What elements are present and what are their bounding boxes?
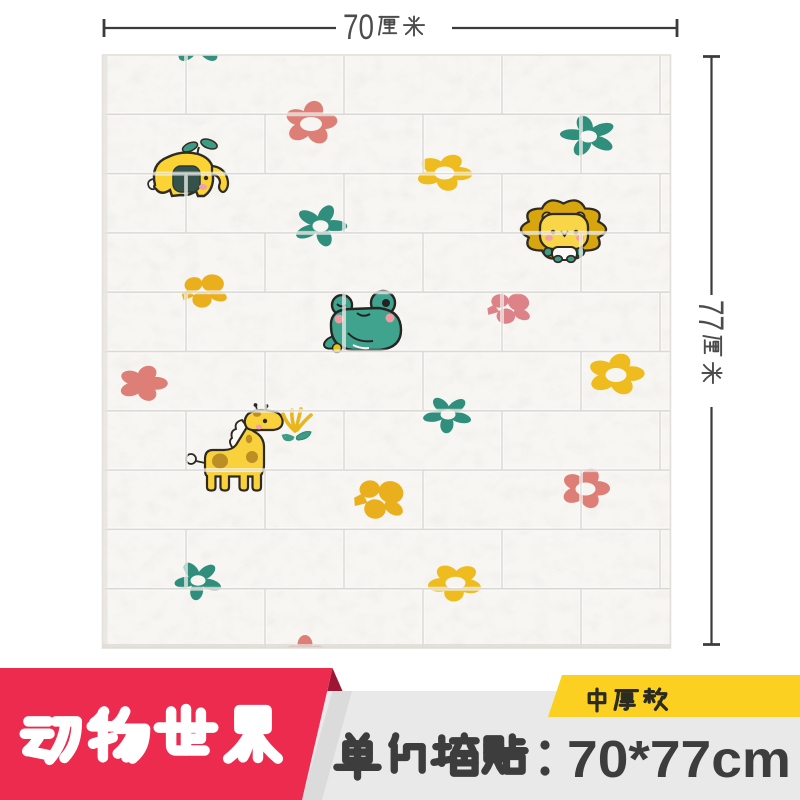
svg-text:70*77cm: 70*77cm — [567, 731, 791, 789]
svg-text:77: 77 — [691, 300, 731, 331]
svg-text:70: 70 — [343, 7, 374, 47]
